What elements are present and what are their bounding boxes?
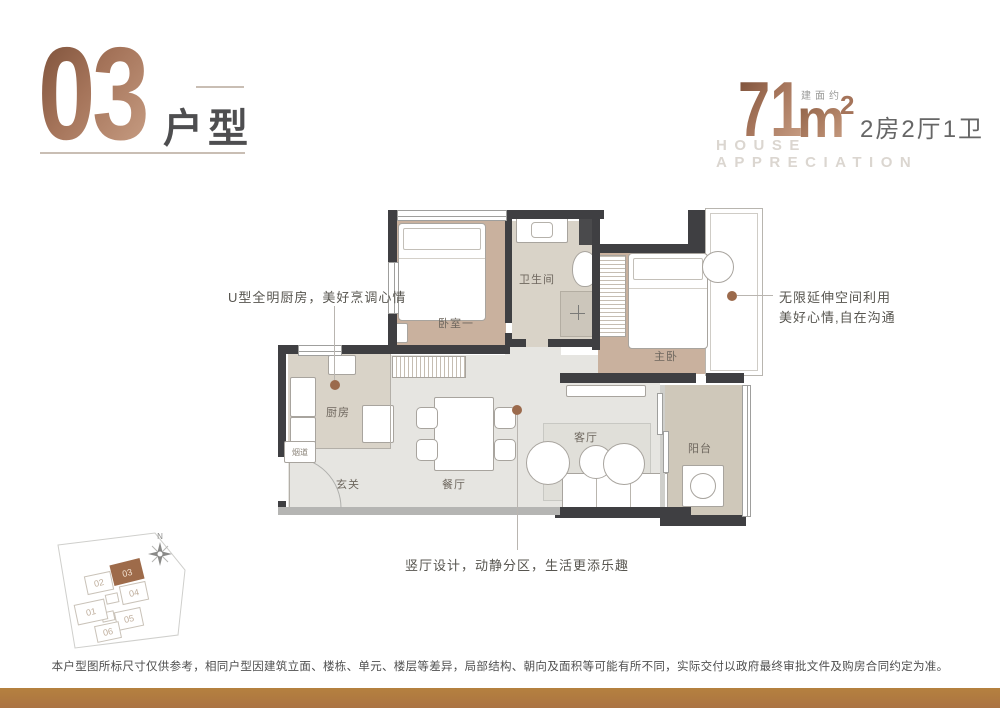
bathroom-cabinet	[579, 219, 592, 245]
dining-chair	[494, 439, 516, 461]
area-unit: m	[797, 97, 845, 141]
wall	[512, 339, 526, 347]
floor-corridor	[505, 347, 561, 359]
wall	[706, 373, 744, 383]
compass-north-label: N	[157, 532, 163, 541]
flex-note-line2: 美好心情,自在沟通	[779, 307, 896, 326]
unit-number: 03	[38, 40, 177, 148]
site-key-plan: N 02 03 04 01 05 06	[50, 516, 230, 661]
pillow	[633, 258, 703, 280]
window-kitchen	[298, 345, 342, 356]
flue-label: 烟道	[285, 447, 315, 458]
blanket-line	[629, 288, 707, 289]
unit-type-label: 户型	[163, 96, 253, 154]
title-accent-line	[196, 86, 244, 88]
pillow	[403, 228, 481, 250]
area-value: 71	[738, 78, 802, 140]
bottom-brand-bar	[0, 688, 1000, 708]
svg-text:01: 01	[85, 606, 97, 618]
room-label-dining: 餐厅	[422, 476, 486, 492]
dining-table	[434, 397, 494, 471]
kitchen-note: U型全明厨房，美好烹调心情	[228, 287, 406, 306]
dining-chair	[416, 439, 438, 461]
hall-callout-dot	[512, 405, 522, 415]
flex-note-line1: 无限延伸空间利用	[779, 287, 891, 306]
flex-callout-line	[737, 295, 773, 296]
tagline-en: HOUSE APPRECIATION	[716, 137, 1000, 171]
flex-callout-dot	[727, 291, 737, 301]
sideboard	[392, 356, 466, 378]
unit-number-text: 03	[38, 40, 146, 148]
room-label-master: 主卧	[634, 348, 698, 364]
kitchen-callout-line	[334, 306, 335, 380]
floor-drain-icon	[570, 305, 585, 320]
floorplan-brochure-page: { "header": { "unit_number": "03", "unit…	[0, 0, 1000, 708]
round-table	[702, 251, 734, 283]
basin	[531, 222, 553, 238]
hall-note: 竖厅设计，动静分区，生活更添乐趣	[377, 555, 657, 574]
svg-text:06: 06	[102, 626, 114, 638]
window-bedroom1-top	[397, 210, 507, 221]
wall	[600, 244, 696, 253]
room-label-entry: 玄关	[316, 476, 380, 492]
wall	[592, 210, 600, 350]
flue-box: 烟道	[284, 441, 316, 463]
kitchen-callout-dot	[330, 380, 340, 390]
svg-text:02: 02	[93, 577, 105, 589]
coffee-table-large	[526, 441, 570, 485]
bed-master	[628, 253, 708, 349]
wall	[660, 515, 746, 526]
room-label-bathroom: 卫生间	[505, 271, 569, 287]
wardrobe-master	[598, 255, 626, 337]
blanket-line	[399, 258, 485, 259]
wall	[548, 339, 594, 347]
disclaimer-text: 本户型图所标尺寸仅供参考，相同户型因建筑立面、楼栋、单元、楼层等差异，局部结构、…	[0, 658, 1000, 674]
wall	[388, 210, 397, 262]
floor-plan: 烟道 卧室一 卫生间 主卧 厨房	[276, 193, 768, 545]
washing-machine	[682, 465, 724, 507]
washer-drum	[690, 473, 716, 499]
room-label-bedroom1: 卧室一	[424, 315, 488, 331]
wall	[504, 210, 604, 219]
window-balcony-right	[742, 385, 751, 517]
wall	[560, 373, 696, 383]
wall	[505, 333, 512, 347]
svg-text:05: 05	[123, 613, 135, 625]
kitchen-partition-line	[390, 353, 391, 449]
hall-callout-line	[517, 415, 518, 550]
dining-chair	[416, 407, 438, 429]
title-underline	[40, 152, 245, 154]
svg-text:04: 04	[128, 587, 140, 599]
wall	[688, 210, 705, 253]
sliding-door-panel	[657, 393, 663, 435]
stove	[328, 355, 356, 375]
room-label-balcony: 阳台	[668, 440, 732, 456]
bed-bedroom1	[398, 223, 486, 321]
room-label-kitchen: 厨房	[306, 404, 370, 420]
wall	[388, 345, 510, 354]
room-label-living: 客厅	[554, 429, 618, 445]
bathroom-vanity	[516, 217, 568, 243]
coffee-table-medium	[603, 443, 645, 485]
tv-bench	[566, 385, 646, 397]
